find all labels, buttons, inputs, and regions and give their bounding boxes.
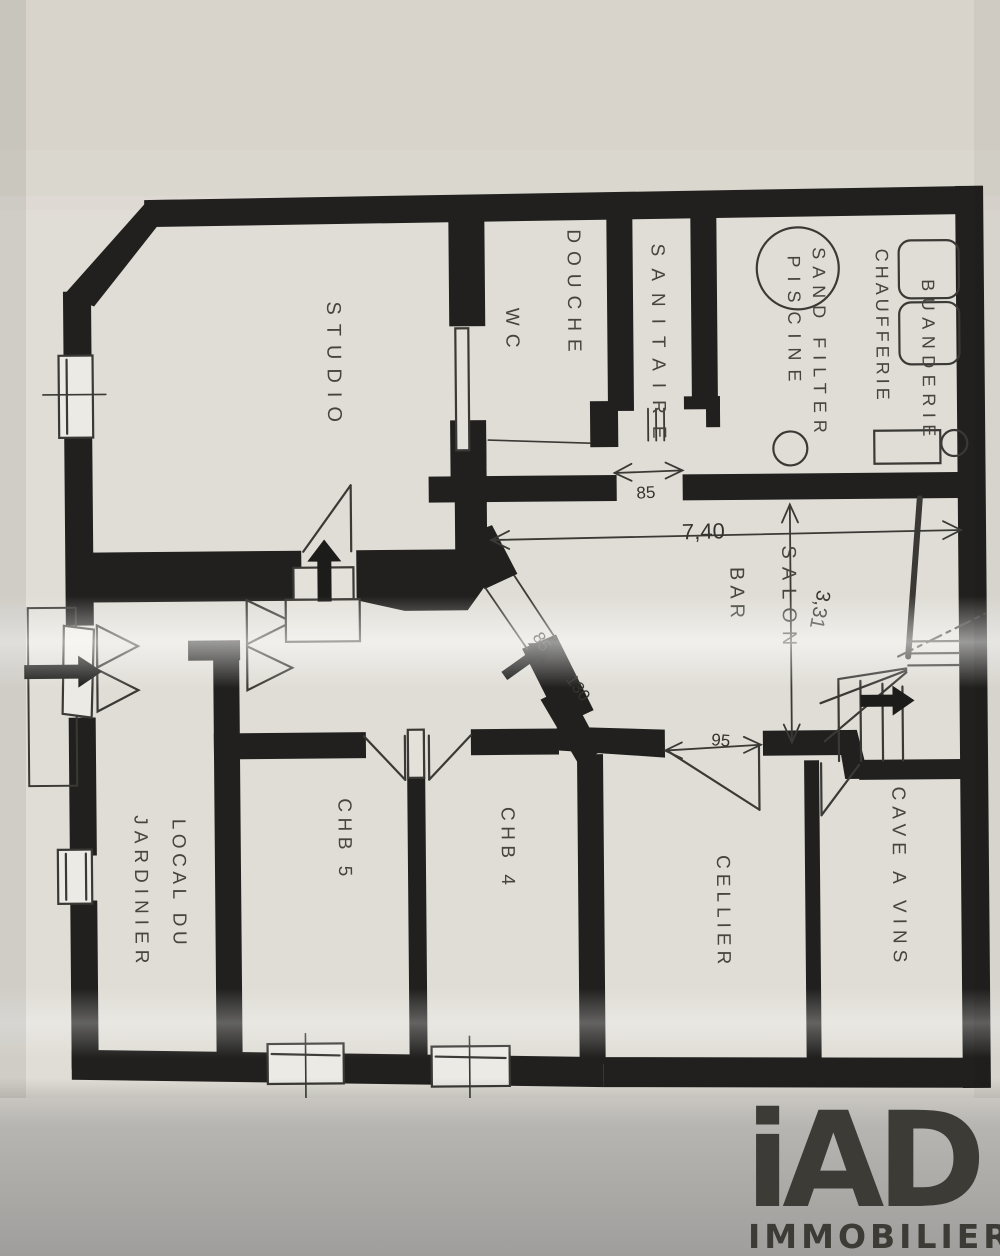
- room-label-cellier: CELLIER: [712, 855, 734, 969]
- room-label-piscine: PISCINE: [784, 255, 805, 390]
- room-label-sanitaire: SANITAIRE: [647, 244, 670, 451]
- room-label-wc: WC: [501, 308, 522, 356]
- dim-95: 95: [711, 730, 731, 750]
- room-label-chb5: CHB 5: [333, 798, 355, 882]
- room-label-chaufferie: CHAUFFERIE: [872, 249, 893, 404]
- agency-logo: iAD IMMOBILIER: [745, 1084, 1000, 1256]
- paper-fold-highlight: [0, 596, 1000, 688]
- room-label-jardinier: JARDINIER: [130, 815, 152, 969]
- agency-logo-brand: iAD: [745, 1084, 979, 1238]
- room-label-chb4: CHB 4: [496, 807, 518, 891]
- room-label-studio: STUDIO: [322, 301, 345, 431]
- paper-fold-highlight: [0, 988, 1000, 1058]
- partition-notch: [408, 730, 424, 778]
- douche-door-leaf: [455, 328, 469, 450]
- room-label-local-du: LOCAL DU: [168, 819, 190, 950]
- dim-85-sanitaire: 85: [636, 483, 656, 503]
- dim-740: 7,40: [682, 518, 725, 544]
- floor-plan-photo: STUDIO DOUCHE WC SANITAIRE SAND FILTER P…: [0, 0, 1000, 1256]
- room-label-cave-a-vins: CAVE A VINS: [887, 786, 910, 968]
- room-label-sand-filter: SAND FILTER: [809, 247, 831, 440]
- room-label-douche: DOUCHE: [562, 229, 584, 360]
- agency-logo-subtitle: IMMOBILIER: [748, 1217, 1000, 1256]
- room-label-buanderie: BUANDERIE: [918, 279, 939, 443]
- window-jardinier: [58, 850, 92, 904]
